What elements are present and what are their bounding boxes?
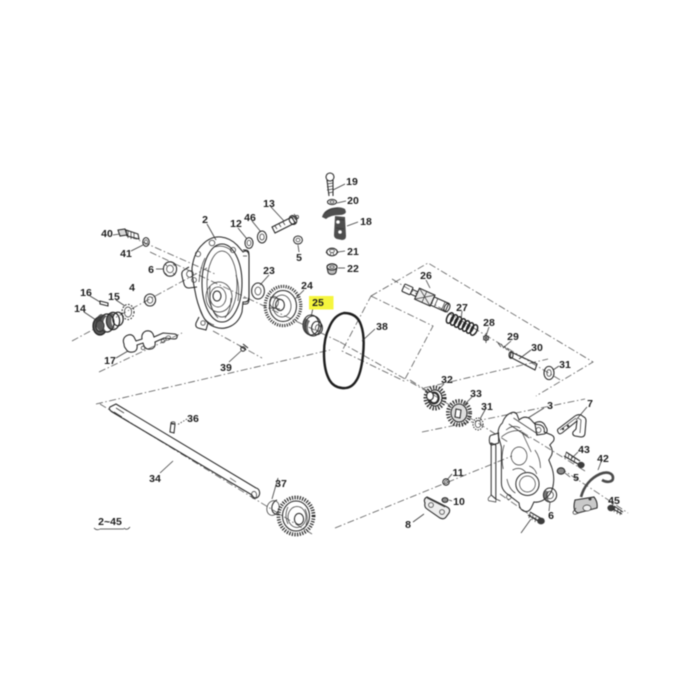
svg-text:46: 46 [244,212,256,224]
svg-text:25: 25 [312,297,324,309]
svg-text:19: 19 [346,176,358,188]
svg-text:15: 15 [108,291,120,303]
svg-text:42: 42 [597,453,609,465]
svg-text:16: 16 [80,287,92,299]
svg-text:18: 18 [360,216,372,228]
svg-text:45: 45 [608,495,620,507]
svg-text:23: 23 [263,265,275,277]
svg-text:21: 21 [347,246,359,258]
svg-text:6: 6 [148,264,154,276]
svg-text:11: 11 [452,467,463,479]
svg-text:28: 28 [483,317,495,329]
svg-text:31: 31 [559,359,571,371]
svg-text:5: 5 [573,472,579,484]
svg-text:8: 8 [405,519,411,531]
svg-text:33: 33 [470,388,482,400]
svg-text:37: 37 [275,478,287,490]
svg-text:26: 26 [420,270,432,282]
svg-text:24: 24 [301,280,313,292]
svg-text:39: 39 [220,362,232,374]
svg-text:6: 6 [548,510,554,522]
svg-text:36: 36 [187,413,199,425]
svg-text:3: 3 [547,400,553,412]
svg-text:32: 32 [441,374,453,386]
svg-text:30: 30 [531,342,543,354]
svg-text:34: 34 [149,473,161,485]
svg-text:17: 17 [104,355,116,367]
svg-text:20: 20 [347,195,359,207]
svg-text:31: 31 [481,401,493,413]
svg-text:12: 12 [230,218,242,230]
svg-text:7: 7 [587,398,593,410]
svg-text:38: 38 [376,321,388,333]
svg-text:29: 29 [507,331,519,343]
svg-text:2: 2 [202,214,208,226]
svg-text:14: 14 [74,303,86,315]
svg-text:43: 43 [578,444,590,456]
svg-text:10: 10 [453,496,465,508]
svg-text:41: 41 [120,248,132,260]
svg-text:13: 13 [263,198,275,210]
svg-text:2~45: 2~45 [98,516,122,528]
svg-text:40: 40 [101,228,113,240]
svg-text:27: 27 [456,302,468,314]
svg-text:4: 4 [129,282,135,294]
svg-text:5: 5 [296,252,302,264]
svg-text:22: 22 [347,263,359,275]
